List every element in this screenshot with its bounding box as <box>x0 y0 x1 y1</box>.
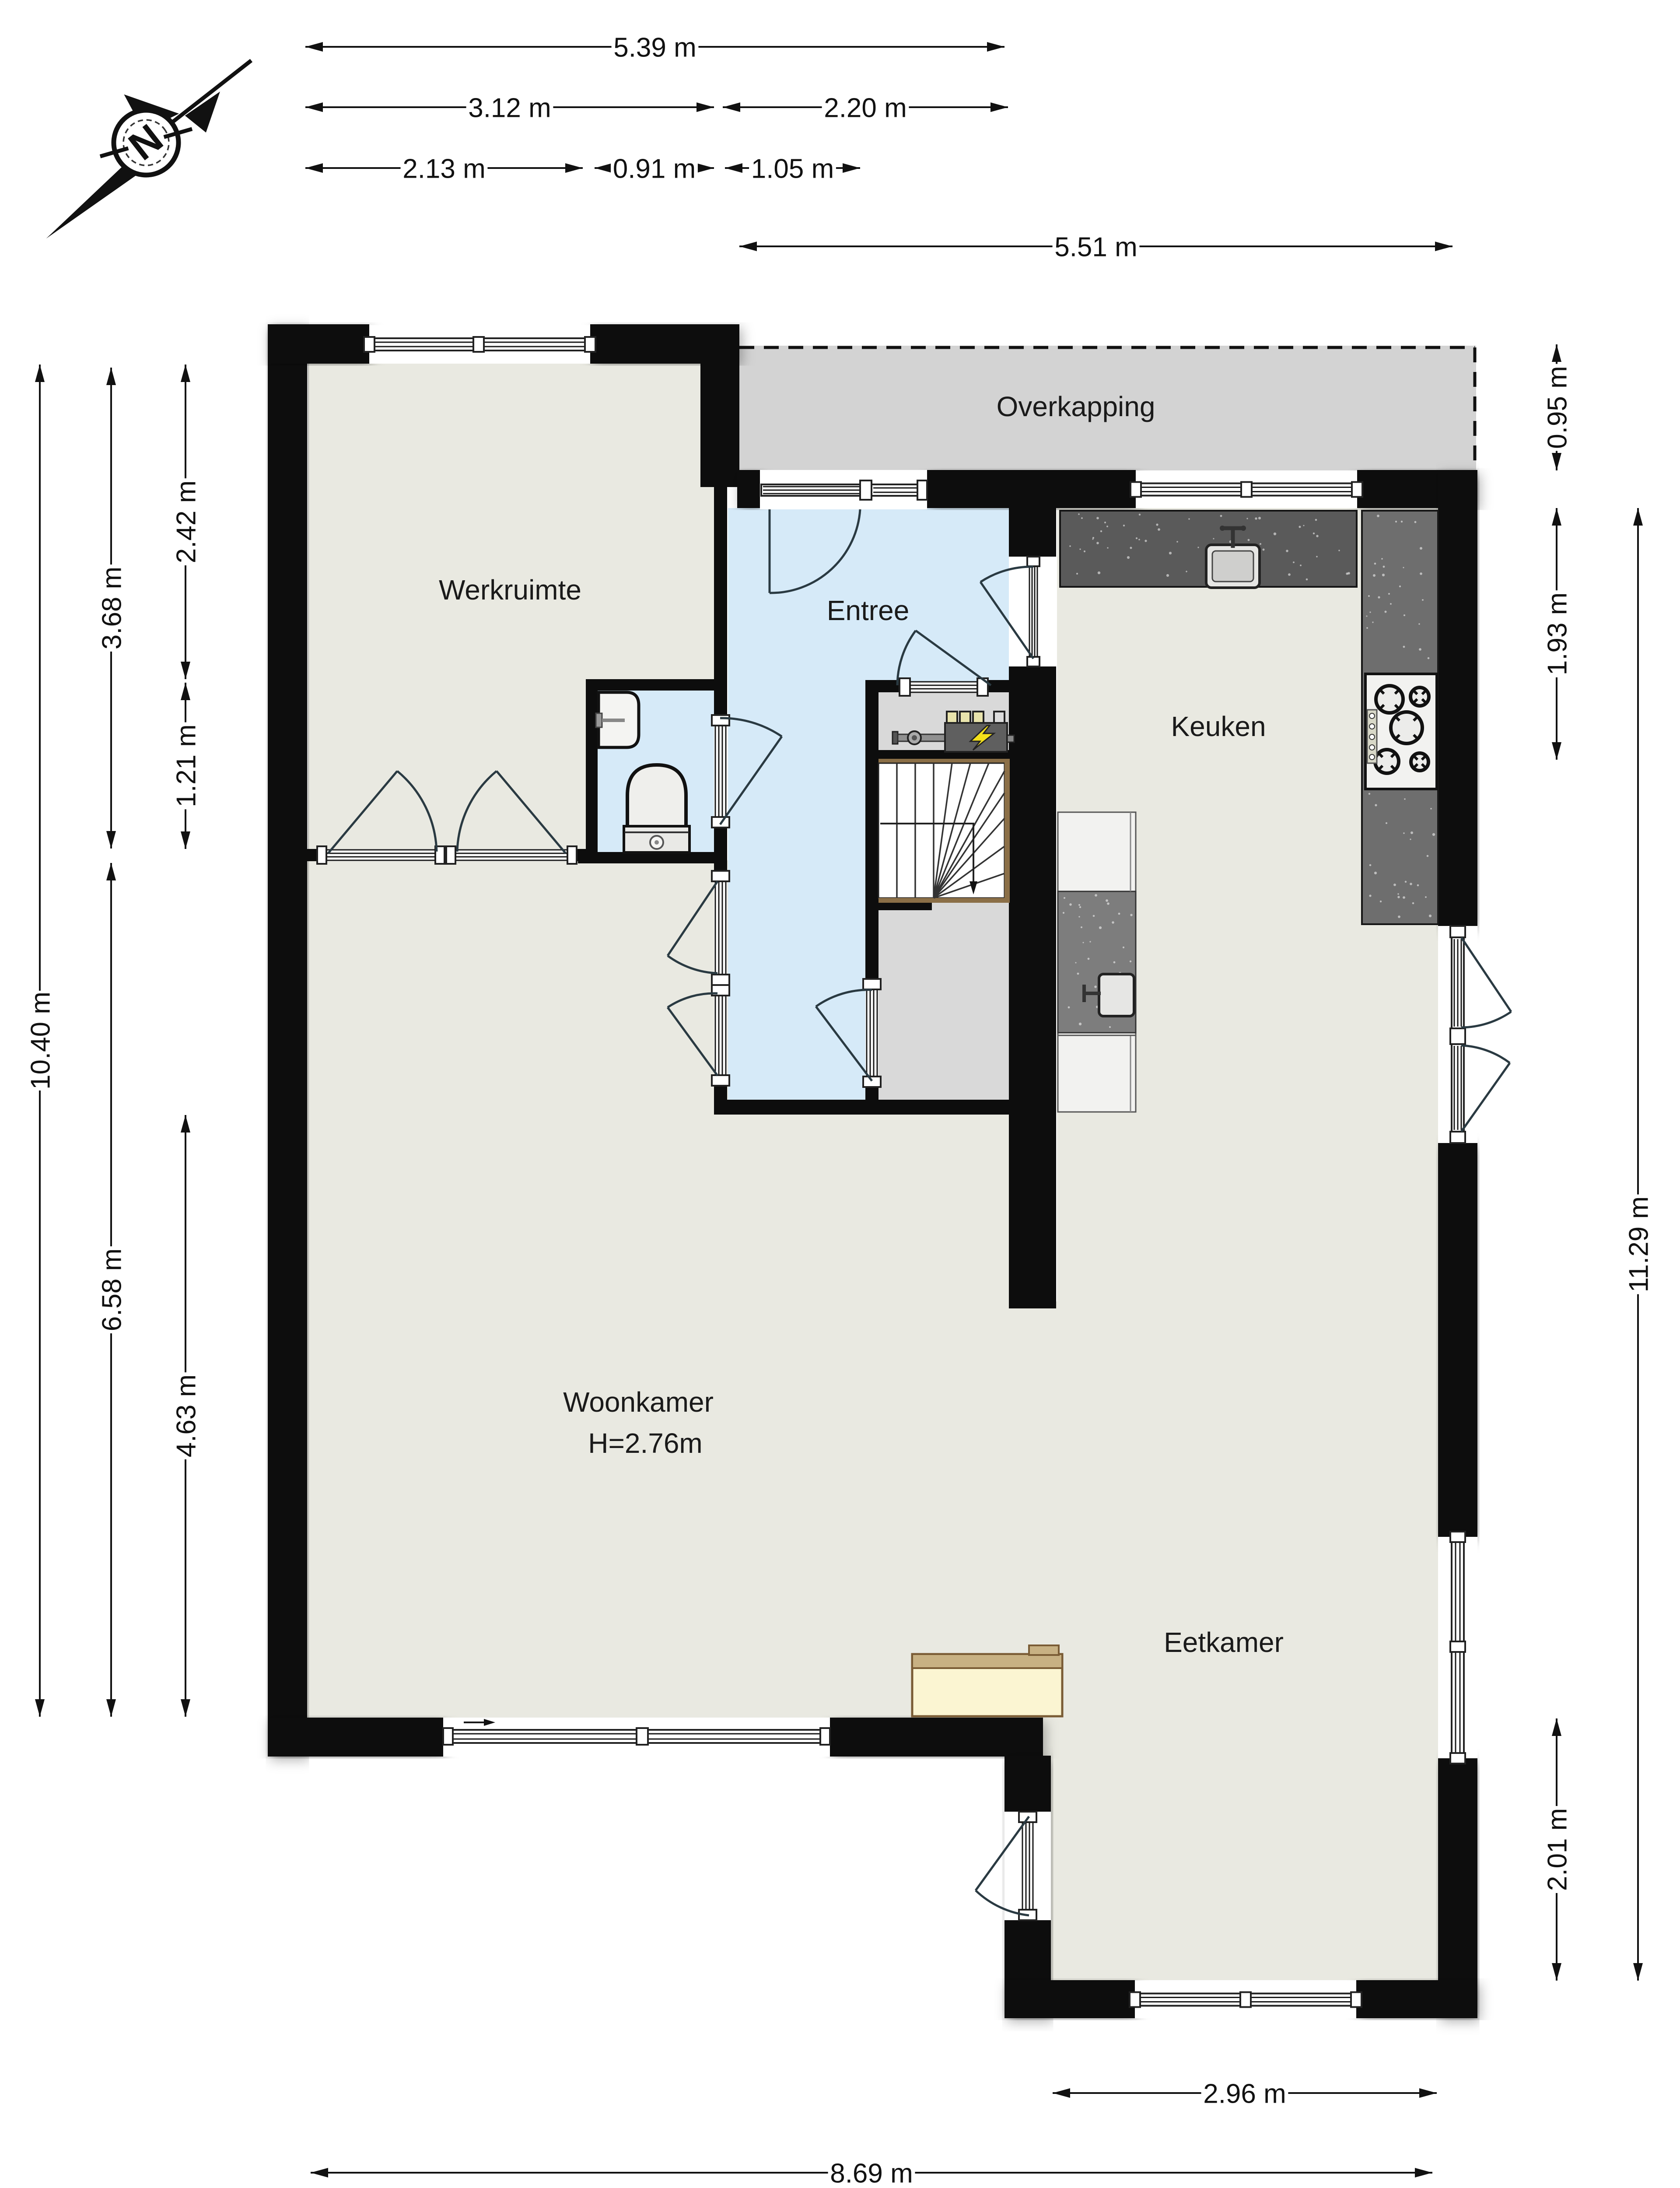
svg-text:5.39 m: 5.39 m <box>613 32 696 63</box>
svg-text:3.68 m: 3.68 m <box>97 567 127 650</box>
svg-text:2.96 m: 2.96 m <box>1203 2079 1286 2109</box>
svg-text:Eetkamer: Eetkamer <box>1164 1627 1284 1658</box>
svg-text:2.20 m: 2.20 m <box>824 93 907 123</box>
svg-text:6.58 m: 6.58 m <box>97 1248 127 1332</box>
svg-text:1.05 m: 1.05 m <box>751 154 834 184</box>
svg-text:1.93 m: 1.93 m <box>1542 593 1572 676</box>
svg-text:10.40 m: 10.40 m <box>25 992 56 1090</box>
svg-text:Woonkamer: Woonkamer <box>563 1386 714 1418</box>
svg-text:5.51 m: 5.51 m <box>1054 232 1137 262</box>
svg-text:1.21 m: 1.21 m <box>171 724 201 807</box>
svg-text:Entree: Entree <box>827 595 910 626</box>
svg-text:3.12 m: 3.12 m <box>468 93 551 123</box>
svg-text:2.01 m: 2.01 m <box>1542 1808 1572 1891</box>
svg-text:H=2.76m: H=2.76m <box>588 1427 702 1459</box>
svg-text:0.95 m: 0.95 m <box>1542 366 1572 449</box>
svg-text:11.29 m: 11.29 m <box>1624 1196 1654 1292</box>
svg-text:2.42 m: 2.42 m <box>171 480 201 564</box>
svg-text:0.91 m: 0.91 m <box>613 154 696 184</box>
svg-text:2.13 m: 2.13 m <box>402 154 486 184</box>
svg-text:8.69 m: 8.69 m <box>830 2158 913 2188</box>
svg-text:Werkruimte: Werkruimte <box>439 574 581 606</box>
svg-text:4.63 m: 4.63 m <box>171 1375 201 1458</box>
svg-text:Overkapping: Overkapping <box>997 391 1155 422</box>
svg-text:Keuken: Keuken <box>1171 711 1266 742</box>
